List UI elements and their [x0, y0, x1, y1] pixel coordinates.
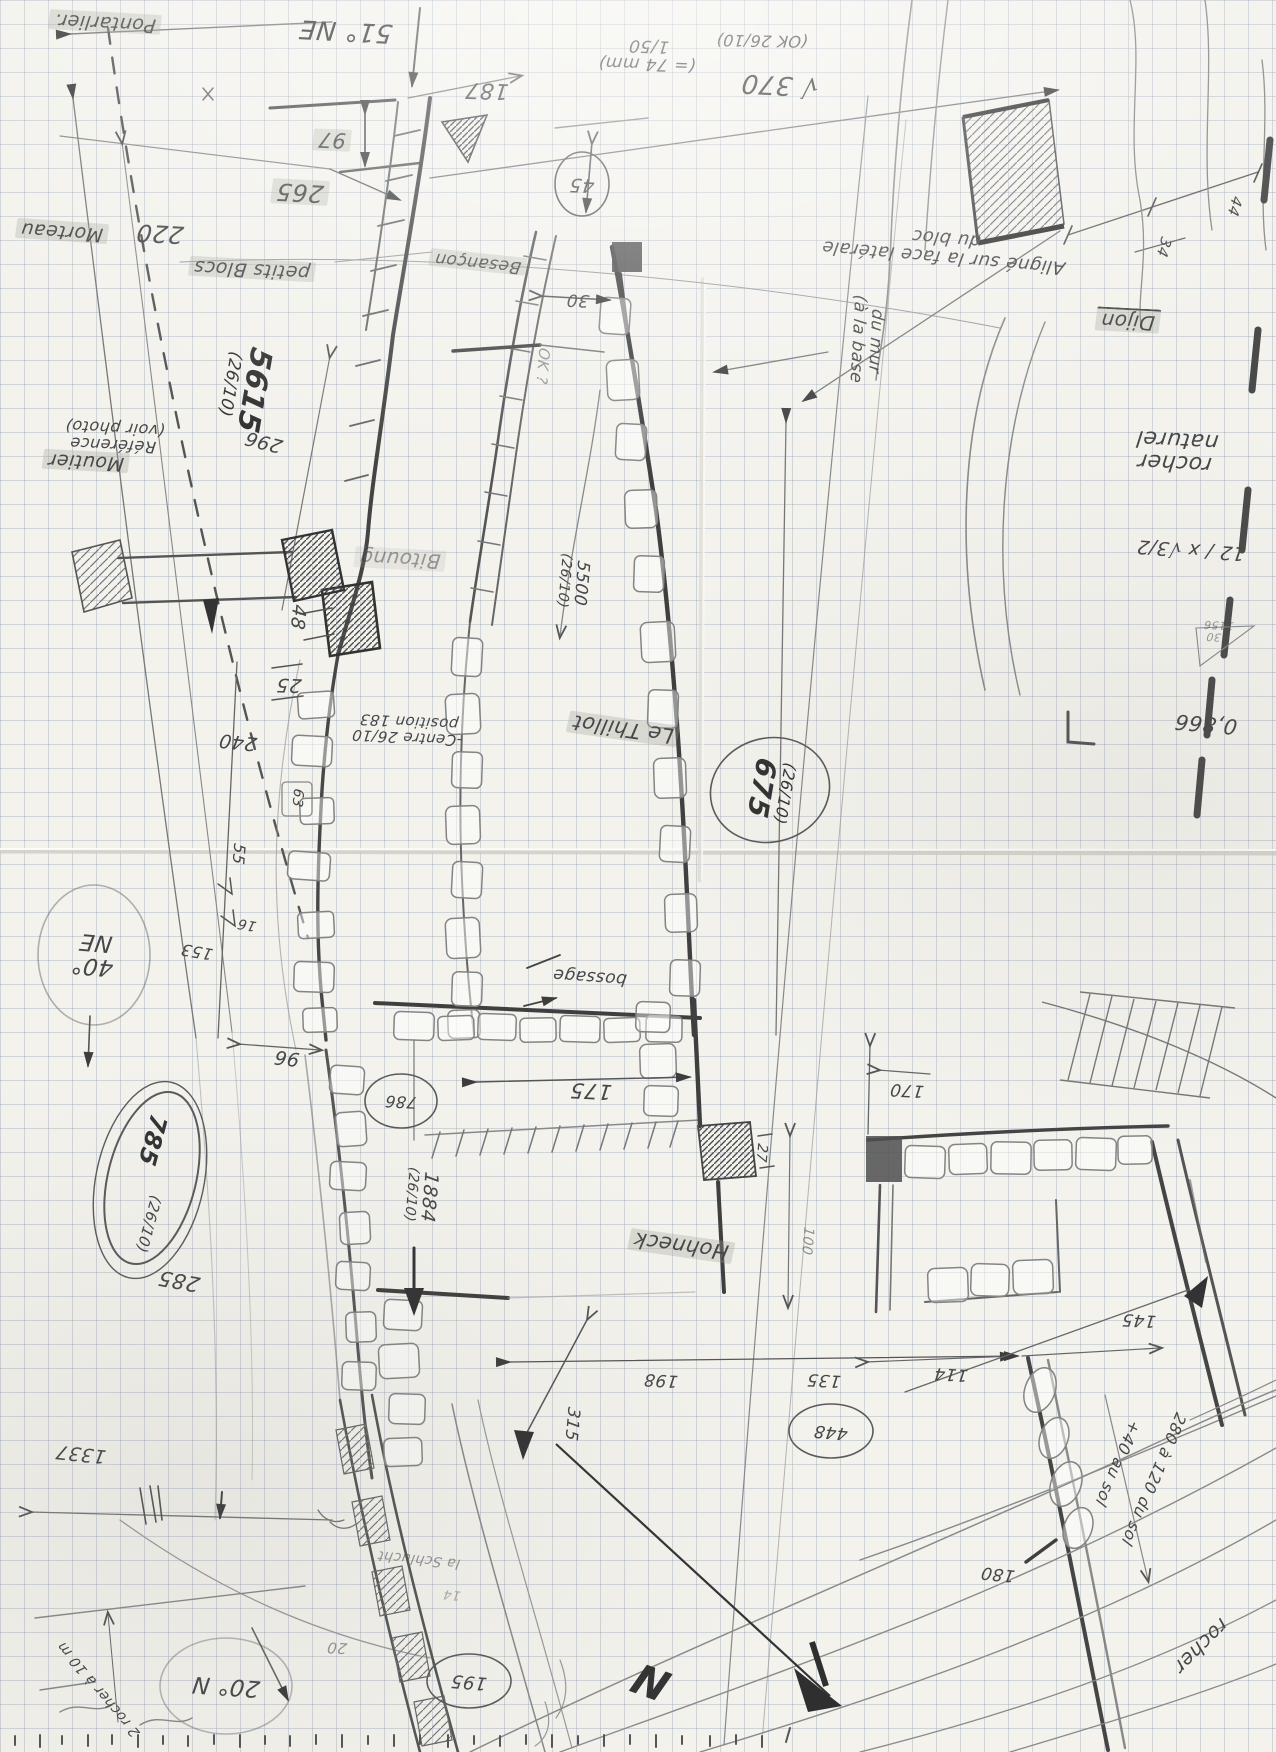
label-97: 97 [312, 128, 352, 151]
label-ok-question: OK ? [533, 347, 552, 386]
dimension-arrows [88, 114, 1262, 1528]
label-14: 14 [442, 1586, 462, 1601]
label-1337: 1337 [54, 1441, 108, 1466]
label-175: 175 [569, 1079, 613, 1103]
label-180: 180 [980, 1562, 1017, 1583]
label-scale-note: (= 74 mm)1/50 [597, 35, 698, 74]
north-arrow [556, 1444, 842, 1712]
label-786: 786 [384, 1092, 418, 1110]
label-30: 30 [566, 290, 590, 309]
label-20: 20 [326, 1639, 348, 1656]
stone-blocks [287, 297, 1152, 1553]
label-calc-0866: 0,866 [1173, 710, 1239, 737]
label-370: √ 370 [740, 68, 820, 99]
label-100: 100 [798, 1226, 815, 1256]
label-448: 448 [813, 1421, 850, 1442]
label-fraction: 5301156 [1202, 619, 1235, 644]
label-dijon: Dijon [1095, 306, 1162, 333]
label-1884: 1884(26/10) [401, 1166, 440, 1226]
label-bitoung: Bitoung [353, 546, 446, 572]
label-bossage: bossage [552, 965, 628, 988]
label-25: 25 [275, 674, 302, 695]
label-187: 187 [464, 78, 510, 103]
label-centre-note: -Centre 26/10position 183 [351, 710, 465, 747]
label-a-la-base: du mur (à la base [846, 294, 886, 387]
label-170: 170 [889, 1079, 925, 1099]
label-96: 96 [273, 1046, 302, 1068]
label-27: 27 [753, 1142, 769, 1163]
label-16: 16 [236, 915, 258, 933]
label-48: 48 [286, 603, 308, 631]
label-5500: 5500(26/10) [555, 552, 592, 612]
misc-marks [15, 626, 1254, 1747]
label-265: 265 [270, 178, 330, 206]
label-198: 198 [643, 1369, 679, 1389]
label-315: 315 [561, 1406, 582, 1443]
label-220: 220 [135, 219, 185, 247]
label-ok-26-10: (OK 26/10) [715, 31, 808, 49]
label-bearing-40ne: 40°NE [69, 928, 119, 979]
label-240: 240 [217, 729, 258, 753]
label-bearing-51ne: 51° NE [298, 14, 394, 46]
label-rocher-naturel: rochernaturel [1132, 426, 1220, 476]
survey-sketch-sheet: Pontarlier. 51° NE 187 97 265 220 Mortea… [0, 0, 1276, 1752]
label-145: 145 [1121, 1309, 1157, 1329]
label-moutier: Moutier [42, 449, 130, 473]
label-63: 63 [289, 787, 305, 808]
label-55: 55 [229, 842, 247, 866]
label-195: 195 [450, 1670, 489, 1692]
label-45: 45 [568, 174, 595, 195]
label-114: 114 [933, 1363, 969, 1383]
label-135: 135 [806, 1369, 842, 1389]
label-bearing-20n: 20° N [191, 1672, 262, 1701]
label-675: (26/10)675 [742, 754, 798, 826]
